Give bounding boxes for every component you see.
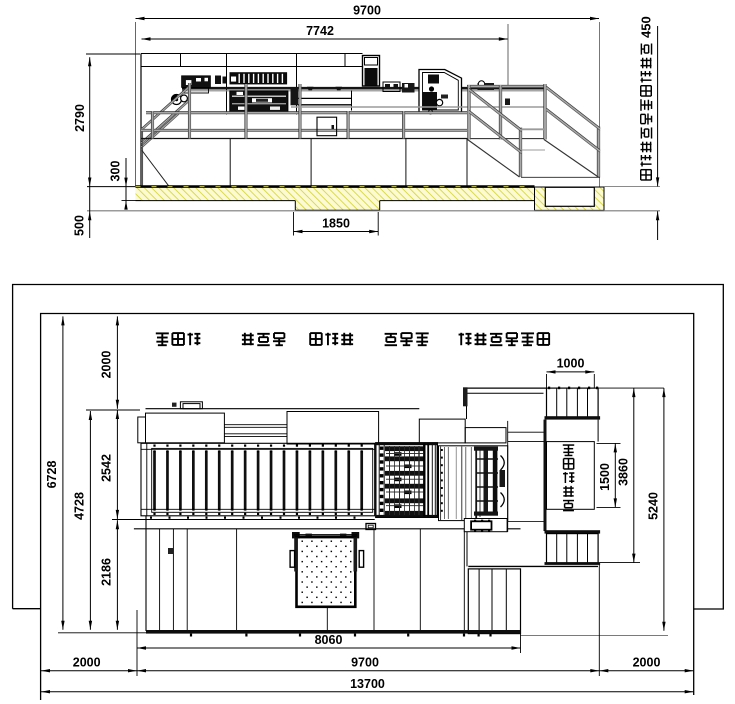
svg-text:3860: 3860 (617, 458, 631, 486)
svg-text:7742: 7742 (306, 24, 334, 38)
svg-text:8060: 8060 (315, 633, 343, 647)
svg-text:1000: 1000 (557, 357, 585, 371)
svg-text:2790: 2790 (73, 104, 87, 132)
svg-text:2542: 2542 (100, 454, 114, 482)
svg-text:5240: 5240 (647, 492, 661, 520)
svg-text:1850: 1850 (322, 217, 350, 231)
svg-text:1500: 1500 (598, 463, 612, 491)
svg-text:9700: 9700 (353, 4, 381, 18)
svg-text:2000: 2000 (100, 351, 114, 379)
svg-text:450: 450 (639, 16, 654, 38)
svg-text:6728: 6728 (45, 461, 59, 489)
svg-text:2000: 2000 (633, 656, 661, 670)
svg-text:2186: 2186 (100, 558, 114, 586)
svg-text:9700: 9700 (351, 656, 379, 670)
svg-text:13700: 13700 (350, 677, 385, 691)
svg-text:500: 500 (73, 215, 87, 236)
svg-text:2000: 2000 (73, 656, 101, 670)
svg-text:300: 300 (109, 161, 123, 182)
svg-text:4728: 4728 (73, 492, 87, 520)
